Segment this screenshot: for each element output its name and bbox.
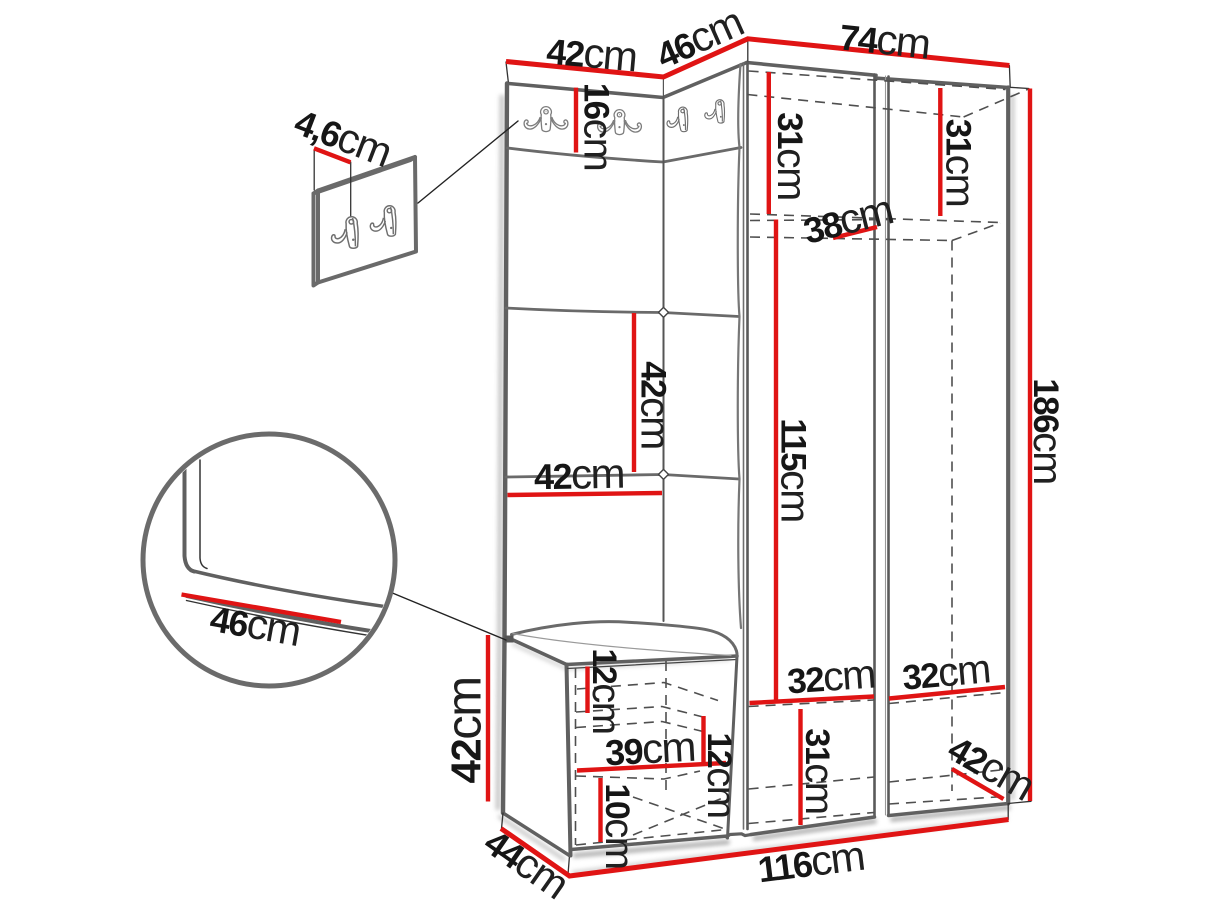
svg-text:31cm: 31cm: [797, 728, 841, 813]
svg-text:42cm: 42cm: [534, 450, 625, 499]
svg-text:10cm: 10cm: [597, 783, 641, 868]
svg-text:42cm: 42cm: [633, 361, 679, 449]
svg-text:16cm: 16cm: [576, 83, 622, 171]
svg-text:31cm: 31cm: [938, 119, 984, 207]
svg-text:31cm: 31cm: [769, 112, 815, 200]
svg-text:115cm: 115cm: [773, 418, 819, 522]
svg-text:42cm: 42cm: [545, 26, 639, 81]
svg-text:12cm: 12cm: [584, 648, 628, 733]
svg-text:42cm: 42cm: [438, 677, 492, 783]
svg-text:12cm: 12cm: [699, 732, 743, 817]
svg-text:186cm: 186cm: [1025, 378, 1071, 484]
